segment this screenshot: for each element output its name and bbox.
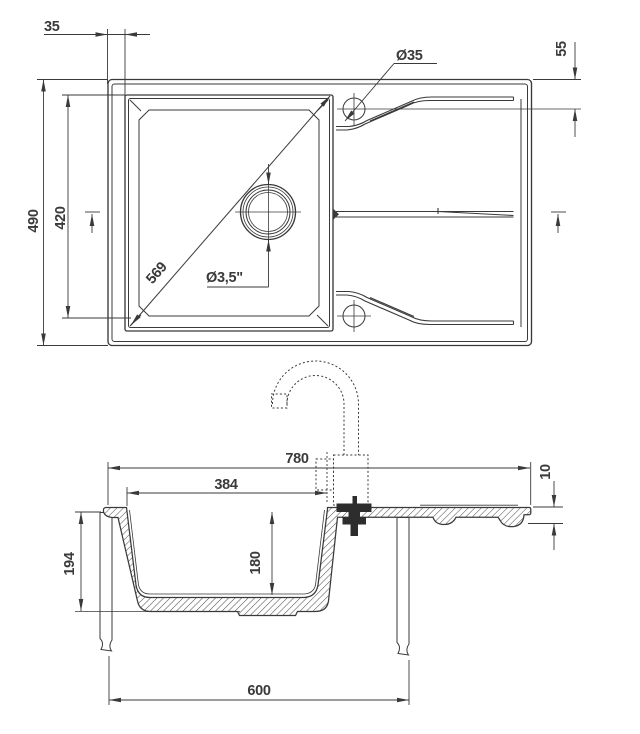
- tap-hole-bottom: [337, 300, 371, 332]
- section-view-drawing: 780 384 10 194: [62, 361, 563, 705]
- cabinet-panel-left: [100, 513, 112, 652]
- drain-hole: [235, 179, 301, 245]
- dim-10-label: 10: [538, 464, 554, 480]
- sink-section: [103, 505, 530, 615]
- dim-569: 569: [131, 96, 330, 325]
- dim-384-label: 384: [214, 477, 238, 493]
- dim-600-label: 600: [247, 683, 271, 699]
- dim-780-label: 780: [285, 451, 309, 467]
- dim-194-label: 194: [62, 552, 78, 576]
- drawing-canvas: 569 Ø3,5": [0, 0, 640, 734]
- faucet-outline: [272, 361, 369, 505]
- dim-10: 10: [528, 464, 563, 550]
- dim-194: 194: [62, 512, 240, 612]
- dim-780: 780: [108, 451, 531, 505]
- dim-490-label: 490: [26, 209, 42, 233]
- dim-180: 180: [248, 512, 274, 595]
- centerline-tick-right: [551, 212, 566, 233]
- top-view-drawing: 569 Ø3,5": [26, 19, 581, 346]
- dim-hole-diameter-label: Ø35: [396, 48, 423, 64]
- dim-420-label: 420: [53, 206, 69, 230]
- dim-drain-label: Ø3,5": [206, 270, 243, 286]
- sink-technical-drawing: 569 Ø3,5": [0, 0, 640, 734]
- dim-600: 600: [109, 656, 409, 705]
- drainer-board: [334, 97, 522, 327]
- centerline-tick-left: [85, 212, 100, 233]
- dim-35-label: 35: [44, 19, 60, 35]
- cabinet-panel-right: [397, 518, 409, 656]
- dim-180-label: 180: [248, 551, 264, 575]
- dim-55-label: 55: [554, 41, 570, 57]
- dim-drain: Ø3,5": [206, 164, 271, 287]
- sink-outline: [108, 80, 532, 346]
- dim-420: 420: [53, 95, 131, 318]
- dim-55: 55: [533, 41, 581, 137]
- dim-35: 35: [44, 19, 150, 97]
